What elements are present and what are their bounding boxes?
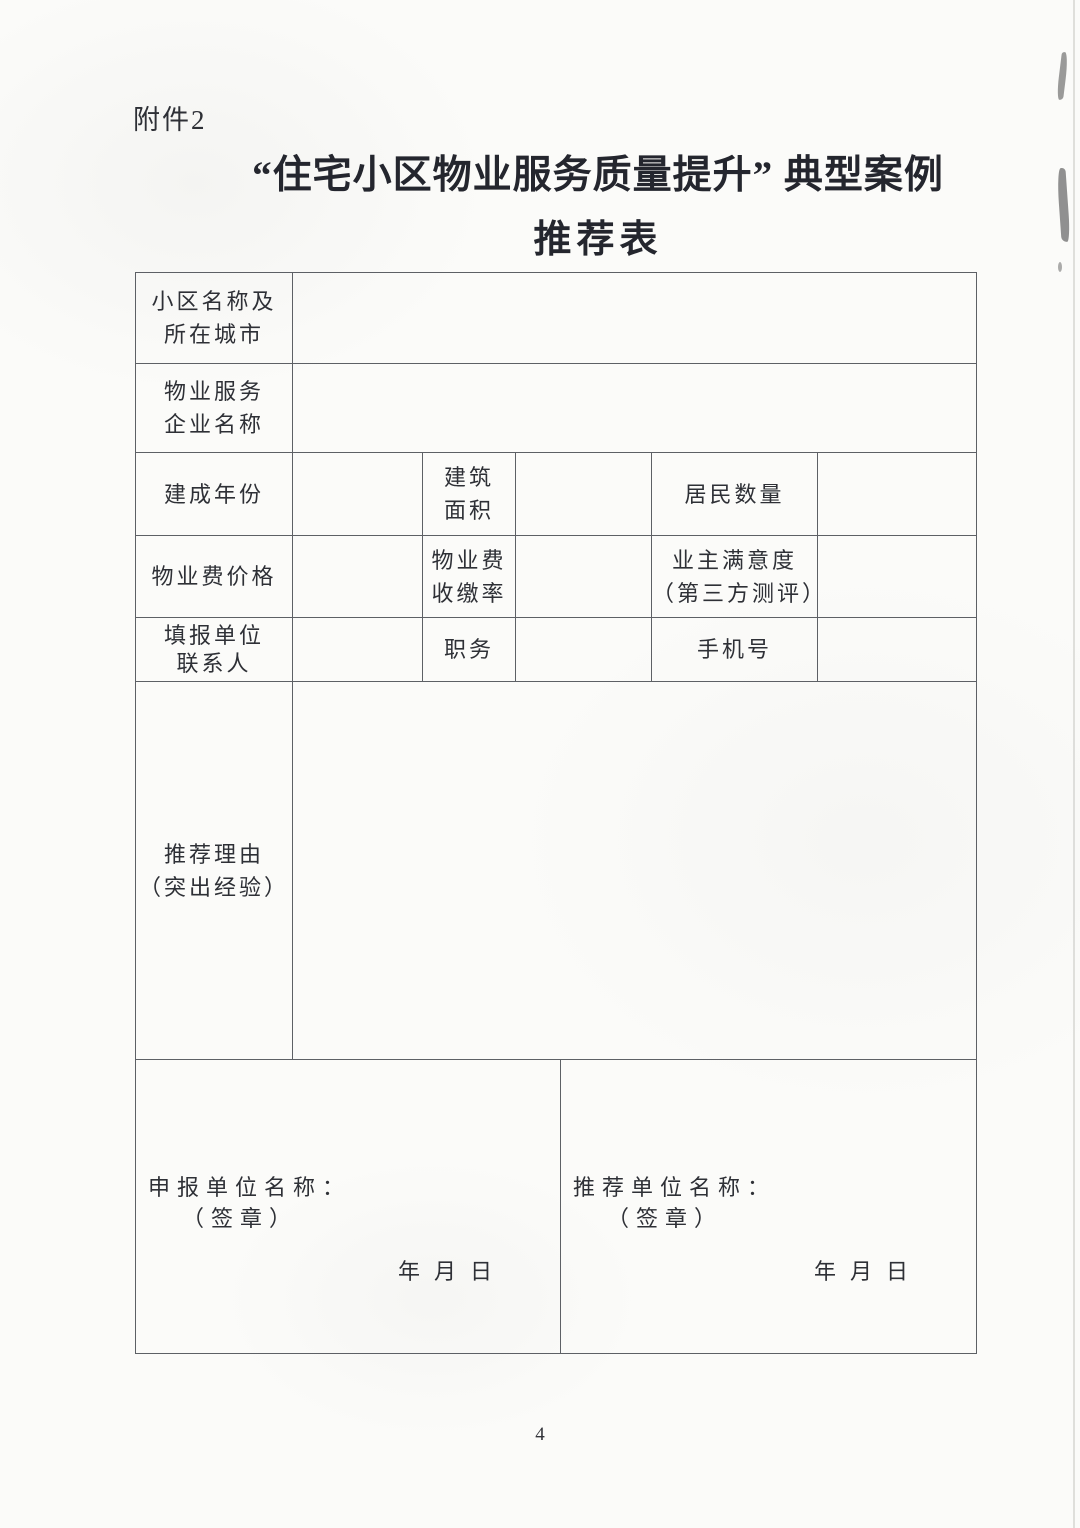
row-fee-satisfaction: 物业费价格 物业费 收缴率 业主满意度 （第三方测评） [136, 536, 976, 618]
label-line: 物业服务 [164, 375, 264, 408]
row-recommendation-reason: 推荐理由 （突出经验） [136, 682, 976, 1060]
building-area-value-cell [516, 453, 652, 535]
document-page: 附件2 “住宅小区物业服务质量提升” 典型案例 推荐表 小区名称及 所在城市 物… [0, 0, 1080, 1528]
page-number: 4 [0, 1424, 1080, 1446]
label-line: 面积 [444, 494, 494, 527]
company-name-value-cell [293, 364, 976, 452]
row-company-name: 物业服务 企业名称 [136, 364, 976, 453]
community-name-label: 小区名称及 所在城市 [136, 273, 293, 363]
contact-person-label: 填报单位 联系人 [136, 618, 293, 681]
label-line: 物业费 [431, 544, 506, 577]
title-line-1: “住宅小区物业服务质量提升” 典型案例 [116, 150, 1080, 202]
attachment-label: 附件2 [133, 98, 207, 137]
applicant-name-label: 申报单位名称： [136, 1172, 560, 1203]
recommendation-form-table: 小区名称及 所在城市 物业服务 企业名称 建成年份 建筑 面积 居民数量 [135, 272, 977, 1354]
owner-satisfaction-label: 业主满意度 （第三方测评） [652, 536, 818, 617]
row-contact: 填报单位 联系人 职务 手机号 [136, 618, 976, 682]
year-built-label: 建成年份 [136, 453, 293, 535]
position-value-cell [516, 618, 652, 681]
fee-price-label: 物业费价格 [136, 536, 293, 617]
building-area-label: 建筑 面积 [423, 453, 516, 535]
label-line: （突出经验） [139, 871, 289, 904]
applicant-date-label: 年月日 [136, 1256, 560, 1287]
contact-person-value-cell [293, 618, 423, 681]
label-line: 联系人 [176, 650, 251, 678]
label-line: 填报单位 [164, 622, 264, 650]
label-line: 企业名称 [164, 408, 264, 441]
residents-count-value-cell [818, 453, 976, 535]
fee-collection-rate-value-cell [516, 536, 652, 617]
row-signatures: 申报单位名称： （签章） 年月日 推荐单位名称： （签章） 年月日 [136, 1060, 976, 1353]
community-name-value-cell [293, 273, 976, 363]
row-community-name: 小区名称及 所在城市 [136, 273, 976, 364]
mobile-label: 手机号 [652, 618, 818, 681]
recommendation-reason-value-cell [293, 682, 976, 1059]
label-line: 推荐理由 [164, 838, 264, 871]
label-line: 小区名称及 [151, 285, 276, 318]
applicant-seal-label: （签章） [136, 1203, 560, 1234]
applicant-signature-block: 申报单位名称： （签章） 年月日 [136, 1060, 561, 1353]
recommender-name-label: 推荐单位名称： [561, 1172, 976, 1203]
recommendation-reason-label: 推荐理由 （突出经验） [136, 682, 293, 1059]
mobile-value-cell [818, 618, 976, 681]
label-line: 建筑 [444, 461, 494, 494]
fee-collection-rate-label: 物业费 收缴率 [423, 536, 516, 617]
label-line: 业主满意度 [672, 544, 797, 577]
company-name-label: 物业服务 企业名称 [136, 364, 293, 452]
title-line-2: 推荐表 [116, 214, 1080, 266]
recommender-signature-block: 推荐单位名称： （签章） 年月日 [561, 1060, 976, 1353]
scan-artifact [1056, 52, 1069, 100]
year-built-value-cell [293, 453, 423, 535]
recommender-seal-label: （签章） [561, 1203, 976, 1234]
owner-satisfaction-value-cell [818, 536, 976, 617]
label-line: 所在城市 [164, 318, 264, 351]
document-title: “住宅小区物业服务质量提升” 典型案例 推荐表 [0, 150, 1080, 266]
label-line: 收缴率 [431, 577, 506, 610]
label-line: （第三方测评） [652, 577, 817, 610]
row-year-area-residents: 建成年份 建筑 面积 居民数量 [136, 453, 976, 536]
position-label: 职务 [423, 618, 516, 681]
residents-count-label: 居民数量 [652, 453, 818, 535]
fee-price-value-cell [293, 536, 423, 617]
recommender-date-label: 年月日 [561, 1256, 976, 1287]
